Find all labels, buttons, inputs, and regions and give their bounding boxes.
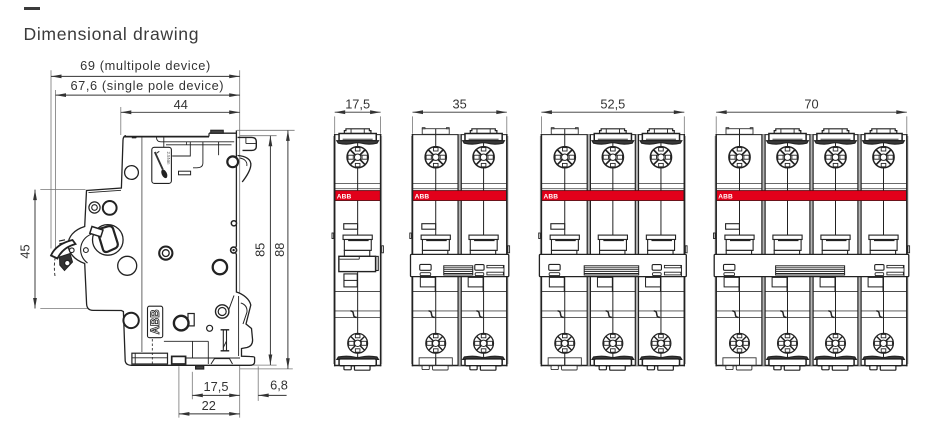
svg-text:ABB: ABB bbox=[150, 309, 162, 334]
svg-text:ABB: ABB bbox=[544, 193, 559, 200]
svg-text:22: 22 bbox=[202, 398, 216, 413]
svg-text:44: 44 bbox=[174, 97, 188, 112]
svg-text:45: 45 bbox=[17, 244, 32, 258]
svg-text:ABB: ABB bbox=[718, 193, 733, 200]
svg-text:69 (multipole device): 69 (multipole device) bbox=[80, 58, 211, 73]
svg-text:17,5: 17,5 bbox=[345, 97, 370, 112]
svg-text:67,6 (single pole device): 67,6 (single pole device) bbox=[70, 78, 224, 93]
svg-text:6,8: 6,8 bbox=[270, 378, 288, 393]
svg-text:35: 35 bbox=[453, 97, 467, 112]
svg-text:ABB: ABB bbox=[415, 193, 430, 200]
svg-text:85: 85 bbox=[253, 243, 268, 257]
svg-text:17,5: 17,5 bbox=[204, 379, 229, 394]
svg-text:2.5Nm: 2.5Nm bbox=[166, 152, 171, 165]
svg-text:ABB: ABB bbox=[337, 193, 352, 200]
svg-text:52,5: 52,5 bbox=[600, 97, 625, 112]
svg-text:70: 70 bbox=[804, 97, 818, 112]
svg-text:88: 88 bbox=[272, 243, 287, 257]
svg-text:Dimensional drawing: Dimensional drawing bbox=[24, 24, 200, 44]
